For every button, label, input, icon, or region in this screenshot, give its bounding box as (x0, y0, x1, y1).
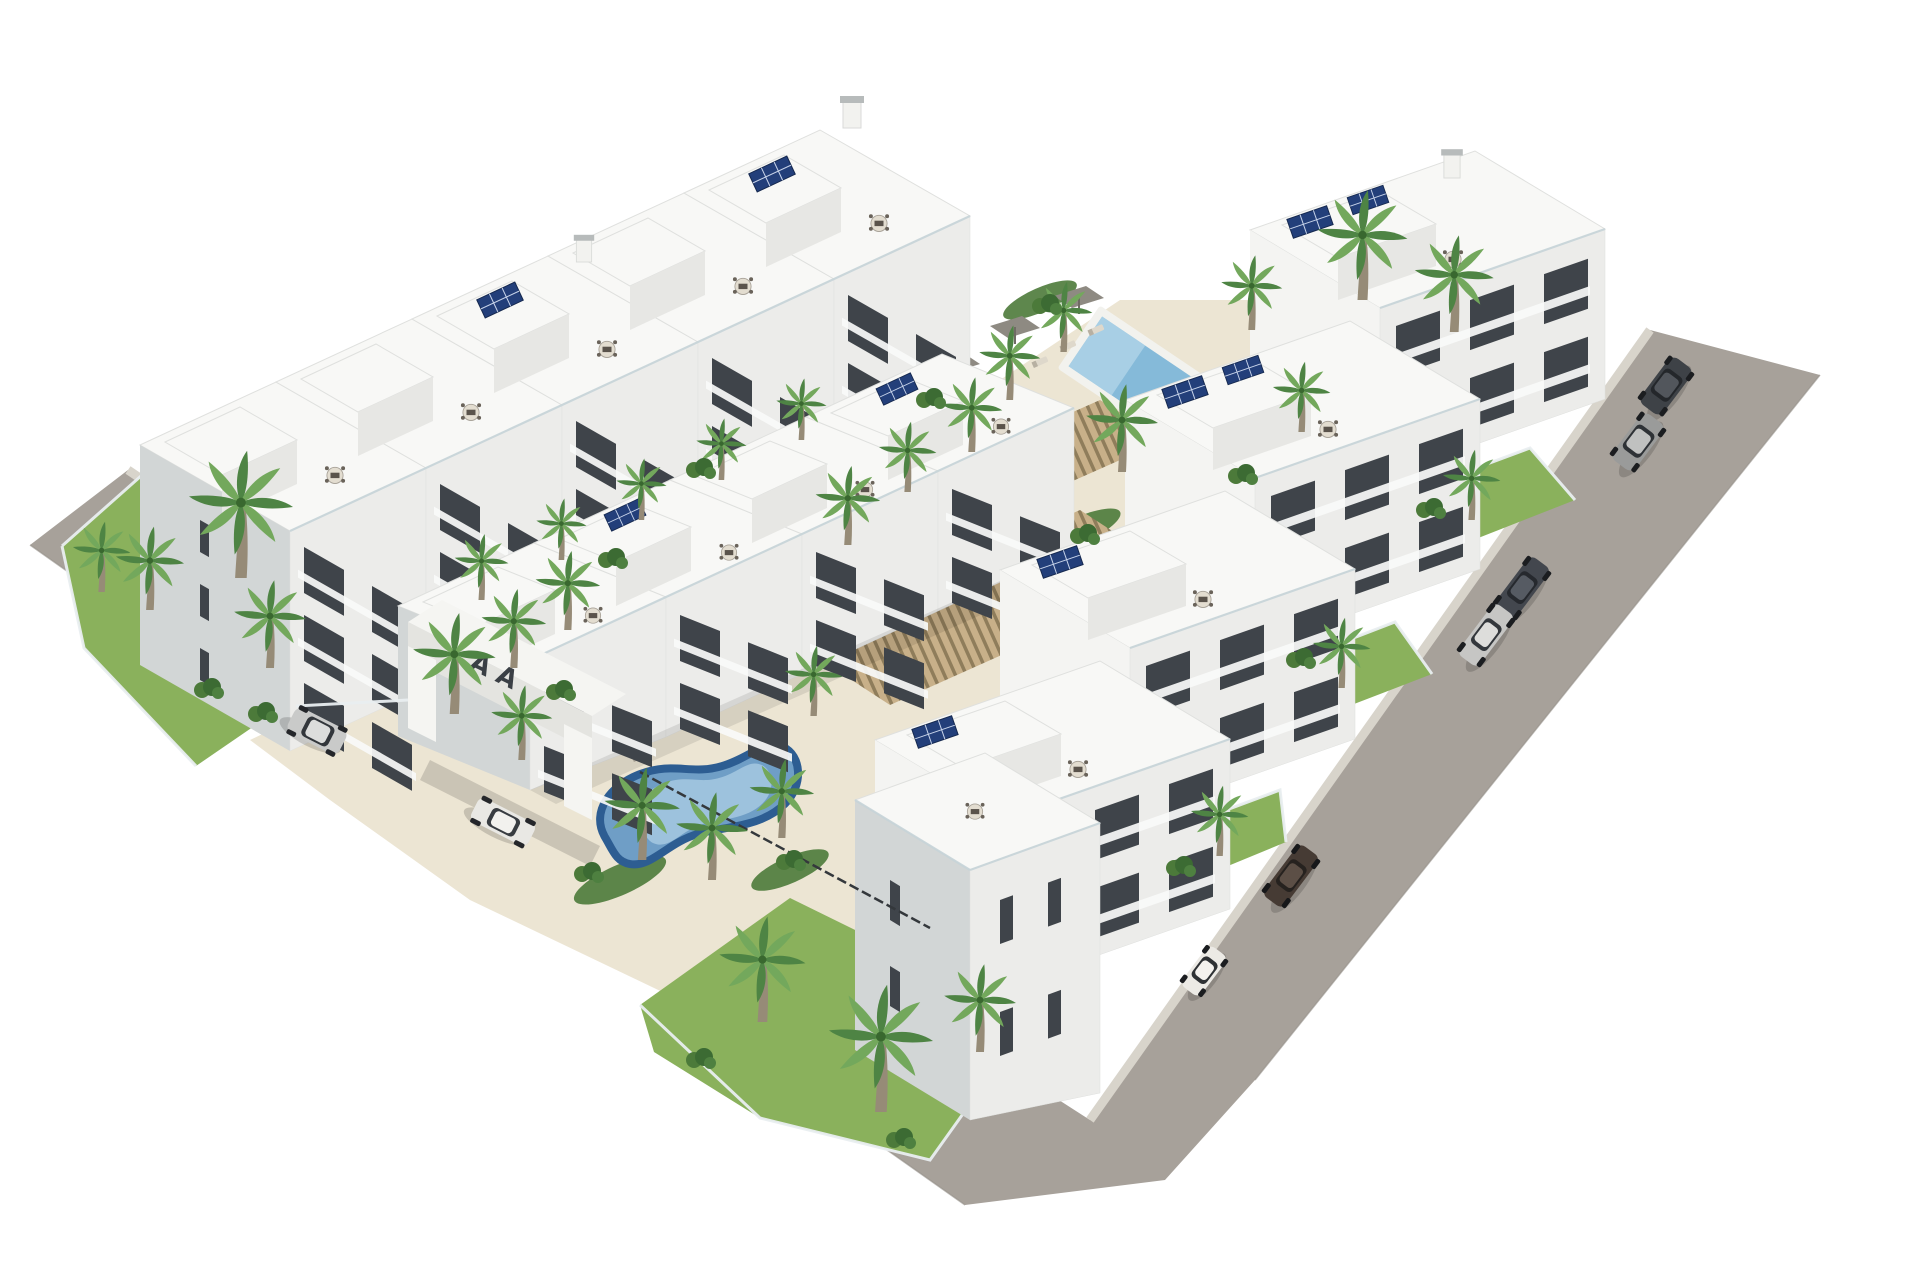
chimney (1441, 149, 1463, 178)
rooftop-dining-set (869, 214, 889, 231)
rooftop-dining-set (325, 466, 345, 483)
chimney (840, 96, 864, 128)
rooftop-dining-set (461, 403, 481, 420)
rooftop-dining-set (965, 803, 984, 819)
render-canvas: Aerial 3D architectural rendering of a w… (0, 0, 1920, 1280)
gate-pillar-left (408, 646, 436, 742)
tower-wall-southeast (970, 823, 1100, 1120)
corner-tower (855, 753, 1100, 1120)
end-wall-slit-windows (200, 520, 209, 685)
architectural-render: Aerial 3D architectural rendering of a w… (0, 0, 1920, 1280)
rooftop-dining-set (583, 607, 602, 623)
chimney (574, 235, 594, 262)
rooftop-dining-set (719, 544, 738, 560)
rooftop-dining-set (1193, 590, 1213, 607)
rooftop-dining-set (991, 418, 1010, 434)
rooftop-dining-set (1318, 420, 1338, 437)
rooftop-dining-set (733, 277, 753, 294)
rooftop-dining-set (1068, 760, 1088, 777)
rooftop-dining-set (597, 340, 617, 357)
gate-pillar-right (564, 724, 592, 820)
